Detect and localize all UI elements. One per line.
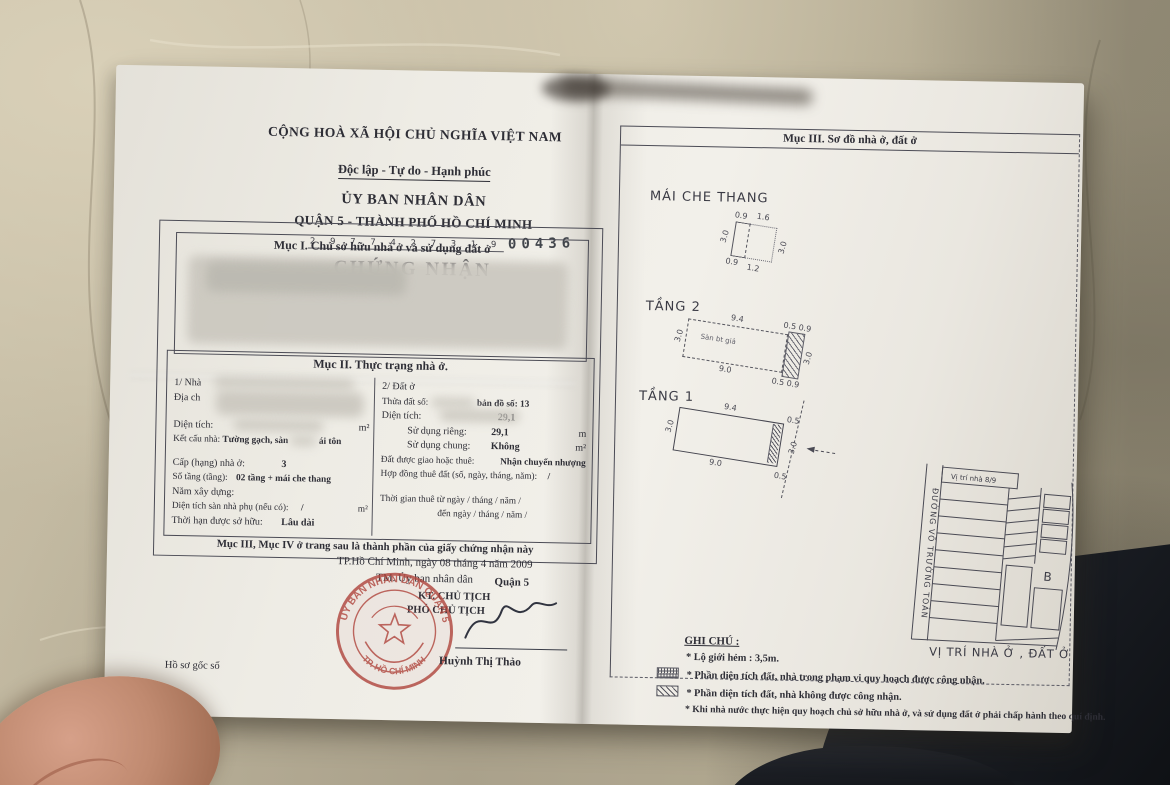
roof-plan-label: MÁI CHE THANG (650, 189, 769, 206)
country-name: CỘNG HOÀ XÃ HỘI CHỦ NGHĨA VIỆT NAM (215, 123, 615, 147)
compliance-note: * Khi nhà nước thực hiện quy hoạch chủ s… (685, 704, 1086, 723)
floor2-diagram: 9.4 0.5 0.9 3.0 3.0 9.0 0.5 0.9 Sàn bt g… (679, 318, 827, 399)
floor2-outline: Sàn bt giả (682, 318, 788, 372)
house-tenure-row: Thời hạn được sở hữu: Lâu dài (171, 513, 367, 531)
section-2-status-box: Mục II. Thực trạng nhà ở. 1/ Nhà Địa ch … (163, 350, 594, 544)
certificate-diagram-page: Mục III. Sơ đồ nhà ở, đất ở MÁI CHE THAN… (582, 74, 1084, 733)
district-label: Quận 5 (494, 576, 529, 589)
map-block-label: B (1043, 570, 1052, 585)
national-motto: Độc lập - Tự do - Hạnh phúc (338, 162, 491, 182)
alley-width-note: * Lộ giới hẻm : 3,5m. (686, 652, 1087, 671)
redacted-structure (290, 437, 316, 446)
direction-arrow-icon (806, 446, 836, 457)
official-red-stamp: ỦY BAN NHÂN DÂN QUẬN 5 TP. HỒ CHÍ MINH (330, 567, 458, 695)
house-address-row: Địa ch (174, 390, 370, 421)
floor1-outline (673, 407, 785, 467)
floor2-label: TẦNG 2 (646, 299, 701, 315)
diagonal-hatch-swatch-icon (656, 685, 678, 696)
fingertip-crease (5, 743, 140, 785)
floor1-label: TẦNG 1 (639, 389, 694, 405)
photo-scene: CỘNG HOÀ XÃ HỘI CHỦ NGHĨA VIỆT NAM Độc l… (0, 0, 1170, 785)
unrecognized-note-row: * Phần diện tích đất, nhà không được côn… (656, 685, 1086, 706)
roof-plan-diagram: 0.9 1.6 3.0 3.0 0.9 1.2 (713, 219, 801, 291)
signature-scribble (457, 593, 568, 651)
floor1-hatched-strip (767, 424, 782, 464)
section-2-title: Mục II. Thực trạng nhà ở. (168, 354, 594, 377)
archive-number-label: Hồ sơ gốc số (165, 660, 220, 672)
issuing-authority: ỦY BAN NHÂN DÂN (214, 189, 614, 214)
site-location-map: Vị trí nhà 8/9 ĐƯỜNG VÕ TRƯỜNG TOẢN B (899, 457, 1080, 656)
section-2-columns: 1/ Nhà Địa ch Diện tích: m² Kết cấu nhà:… (168, 374, 590, 540)
crosshatch-swatch-icon (657, 667, 679, 678)
certificate-front-page: CỘNG HOÀ XÃ HỘI CHỦ NGHĨA VIỆT NAM Độc l… (104, 65, 594, 724)
floor2-inner-text: Sàn bt giả (700, 333, 736, 347)
redacted-land-area (440, 409, 520, 423)
land-lease-to-row: đến ngày / tháng / năm / (380, 506, 585, 524)
land-column: 2/ Đất ở Thửa đất số: bản đồ số: 13 Diện… (372, 378, 590, 540)
floor1-diagram: 9.4 0.5 3.0 3.0 9.0 0.5 (668, 407, 837, 501)
roof-dashed-part (744, 224, 777, 263)
redacted-parcel-number (431, 398, 475, 408)
notes-block: GHI CHÚ : * Lộ giới hẻm : 3,5m. * Phần d… (656, 634, 1087, 722)
redacted-owner-name (206, 262, 407, 296)
certificate-body-frame: Mục I. Chủ sở hữu nhà ở và sử dụng đất ở… (153, 220, 603, 564)
section-3-title: Mục III. Sơ đồ nhà ở, đất ở (621, 129, 1079, 154)
house-column: 1/ Nhà Địa ch Diện tích: m² Kết cấu nhà:… (168, 374, 375, 536)
section-1-owner-box: Mục I. Chủ sở hữu nhà ở và sử dụng đất ở (174, 232, 589, 362)
redacted-house-info (214, 377, 354, 391)
section-3-frame: Mục III. Sơ đồ nhà ở, đất ở MÁI CHE THAN… (610, 125, 1081, 686)
redacted-house-area (233, 419, 323, 432)
certificate-document: CỘNG HOÀ XÃ HỘI CHỦ NGHĨA VIỆT NAM Độc l… (104, 65, 1084, 733)
recognized-note-row: * Phần diện tích đất, nhà trong phạm vi … (657, 667, 1087, 688)
redacted-address (216, 389, 364, 417)
